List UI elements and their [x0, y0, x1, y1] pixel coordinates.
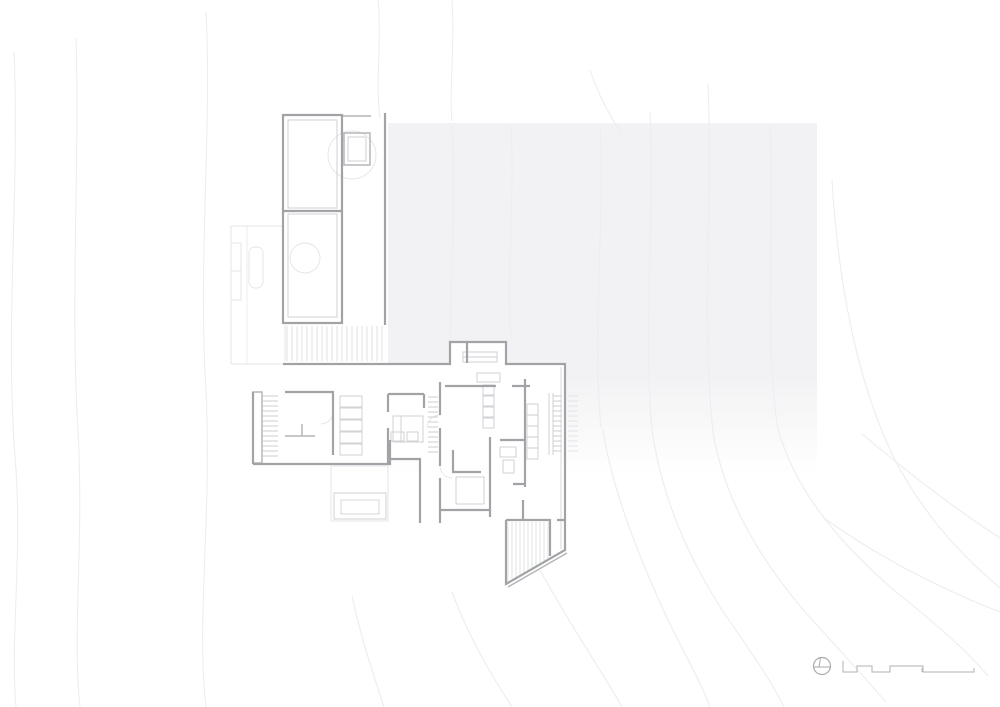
north-arrow-icon	[814, 658, 831, 675]
drawing-sheet	[0, 0, 1000, 707]
floor-plan-canvas	[0, 0, 1000, 707]
scale-bar-icon	[843, 661, 974, 672]
